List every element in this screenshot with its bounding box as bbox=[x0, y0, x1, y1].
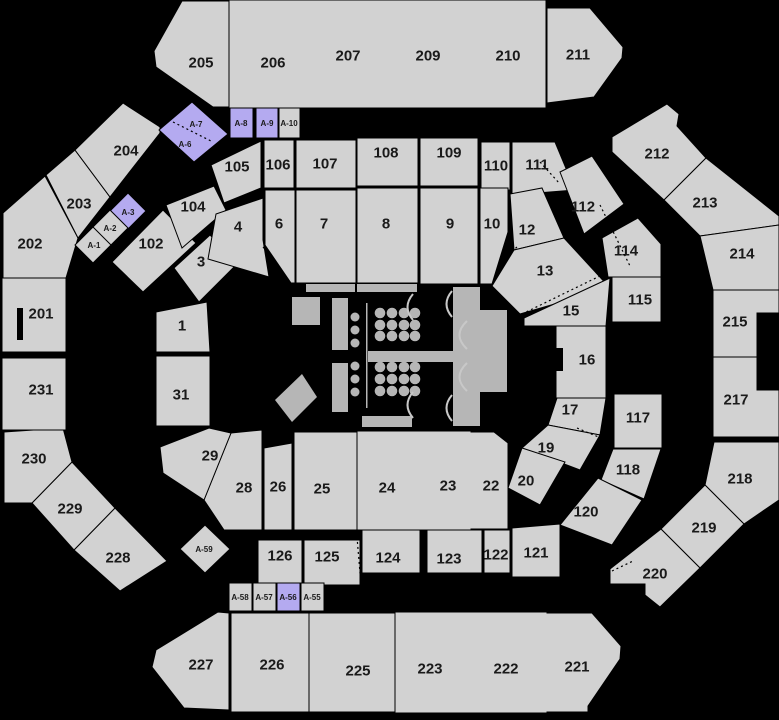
table-circle bbox=[375, 320, 386, 331]
section-shape-222[interactable] bbox=[470, 613, 546, 712]
section-shape-108[interactable] bbox=[357, 138, 418, 186]
table-circle bbox=[399, 362, 410, 373]
section-A-57[interactable]: A-57 bbox=[253, 583, 276, 611]
section-109[interactable]: 109 bbox=[420, 138, 478, 186]
section-shape-A-56[interactable] bbox=[277, 583, 300, 611]
floor-seat-circle bbox=[351, 326, 360, 335]
stage-structure-5 bbox=[366, 303, 368, 408]
section-shape-A-57[interactable] bbox=[253, 583, 276, 611]
section-shape-A-9[interactable] bbox=[256, 108, 278, 138]
section-shape-A-8[interactable] bbox=[230, 108, 253, 138]
table-circle bbox=[387, 320, 398, 331]
section-107[interactable]: 107 bbox=[296, 140, 356, 188]
section-shape-107[interactable] bbox=[296, 140, 356, 188]
table-circle bbox=[410, 331, 421, 342]
section-214[interactable]: 214 bbox=[700, 225, 779, 290]
section-shape-109[interactable] bbox=[420, 138, 478, 186]
section-201[interactable]: 201 bbox=[2, 278, 66, 352]
table-circle bbox=[387, 331, 398, 342]
aisle-cutout-1 bbox=[17, 308, 23, 340]
floor-seat-circle bbox=[351, 313, 360, 322]
table-circle bbox=[387, 386, 398, 397]
stage-structure-0 bbox=[306, 284, 355, 292]
section-shape-122[interactable] bbox=[484, 530, 510, 573]
section-9[interactable]: 9 bbox=[420, 188, 478, 284]
section-shape-9[interactable] bbox=[420, 188, 478, 284]
table-circle bbox=[410, 362, 421, 373]
table-circle bbox=[399, 320, 410, 331]
section-231[interactable]: 231 bbox=[2, 358, 66, 430]
section-shape-110[interactable] bbox=[481, 142, 510, 190]
stage-structure-9 bbox=[362, 416, 412, 427]
section-shape-26[interactable] bbox=[264, 443, 292, 530]
section-shape-22[interactable] bbox=[470, 432, 508, 529]
stage-structure-7 bbox=[453, 287, 480, 426]
stage-structure-2 bbox=[292, 297, 320, 325]
section-A-58[interactable]: A-58 bbox=[229, 583, 252, 611]
section-A-10[interactable]: A-10 bbox=[279, 108, 300, 138]
section-122[interactable]: 122 bbox=[483, 530, 510, 573]
floor-seat-circle bbox=[351, 388, 360, 397]
stage-structure-4 bbox=[332, 363, 348, 412]
stage-structure-3 bbox=[332, 298, 348, 350]
section-shape-126[interactable] bbox=[258, 540, 302, 585]
section-shape-125[interactable] bbox=[304, 540, 360, 585]
seating-map: 2052062072092102112122132142152172182192… bbox=[0, 0, 779, 720]
section-shape-A-10[interactable] bbox=[279, 108, 300, 138]
section-shape-7[interactable] bbox=[296, 190, 356, 283]
section-shape-106[interactable] bbox=[264, 140, 294, 188]
section-22[interactable]: 22 bbox=[470, 432, 508, 529]
section-226[interactable]: 226 bbox=[231, 613, 309, 712]
stage-structure-6 bbox=[368, 351, 454, 362]
section-shape-115[interactable] bbox=[612, 277, 661, 322]
section-7[interactable]: 7 bbox=[296, 190, 356, 283]
section-shape-23[interactable] bbox=[420, 432, 470, 529]
section-223[interactable]: 223 bbox=[395, 613, 470, 712]
table-circle bbox=[375, 331, 386, 342]
section-shape-123[interactable] bbox=[427, 530, 482, 573]
section-shape-210[interactable] bbox=[465, 1, 545, 107]
section-123[interactable]: 123 bbox=[427, 530, 482, 573]
section-117[interactable]: 117 bbox=[614, 394, 662, 448]
section-shape-201[interactable] bbox=[2, 278, 66, 352]
section-207[interactable]: 207 bbox=[310, 1, 390, 107]
section-31[interactable]: 31 bbox=[156, 356, 210, 426]
table-circle bbox=[410, 320, 421, 331]
stage-structure-1 bbox=[357, 284, 417, 292]
table-circle bbox=[410, 374, 421, 385]
section-shape-16[interactable] bbox=[556, 326, 606, 398]
section-124[interactable]: 124 bbox=[362, 530, 420, 573]
section-206[interactable]: 206 bbox=[230, 1, 310, 107]
section-shape-A-55[interactable] bbox=[301, 583, 324, 611]
section-25[interactable]: 25 bbox=[294, 432, 357, 530]
section-shape-209[interactable] bbox=[390, 1, 465, 107]
section-shape-231[interactable] bbox=[2, 358, 66, 430]
section-126[interactable]: 126 bbox=[258, 540, 302, 585]
section-shape-25[interactable] bbox=[294, 432, 357, 530]
section-16[interactable]: 16 bbox=[556, 326, 606, 398]
section-shape-24[interactable] bbox=[358, 432, 420, 529]
section-222[interactable]: 222 bbox=[470, 613, 546, 712]
section-106[interactable]: 106 bbox=[264, 140, 294, 188]
section-shape-214[interactable] bbox=[700, 225, 779, 290]
section-125[interactable]: 125 bbox=[304, 540, 360, 585]
section-shape-225[interactable] bbox=[309, 613, 395, 712]
section-A-9[interactable]: A-9 bbox=[256, 108, 278, 138]
section-121[interactable]: 121 bbox=[512, 524, 560, 577]
section-8[interactable]: 8 bbox=[357, 188, 418, 283]
section-23[interactable]: 23 bbox=[420, 432, 470, 529]
section-shape-206[interactable] bbox=[230, 1, 310, 107]
table-circle bbox=[387, 374, 398, 385]
table-circle bbox=[399, 386, 410, 397]
section-209[interactable]: 209 bbox=[390, 1, 465, 107]
section-A-55[interactable]: A-55 bbox=[301, 583, 324, 611]
table-circle bbox=[375, 374, 386, 385]
floor-seat-circle bbox=[351, 339, 360, 348]
section-A-8[interactable]: A-8 bbox=[230, 108, 253, 138]
section-shape-31[interactable] bbox=[156, 356, 210, 426]
floor-seat-circle bbox=[351, 375, 360, 384]
section-110[interactable]: 110 bbox=[481, 142, 510, 190]
section-shape-117[interactable] bbox=[614, 394, 662, 448]
section-shape-A-58[interactable] bbox=[229, 583, 252, 611]
table-circle bbox=[399, 374, 410, 385]
stage-structure-8 bbox=[480, 310, 507, 392]
arena-map-canvas: 2052062072092102112122132142152172182192… bbox=[0, 0, 779, 720]
section-shape-124[interactable] bbox=[362, 530, 420, 573]
table-circle bbox=[375, 308, 386, 319]
aisle-cutout-0 bbox=[507, 348, 563, 371]
section-24[interactable]: 24 bbox=[358, 432, 420, 529]
section-210[interactable]: 210 bbox=[465, 1, 545, 107]
floor-seat-circle bbox=[351, 362, 360, 371]
section-shape-223[interactable] bbox=[395, 613, 470, 712]
section-shape-121[interactable] bbox=[512, 524, 560, 577]
section-A-56[interactable]: A-56 bbox=[277, 583, 300, 611]
section-26[interactable]: 26 bbox=[264, 443, 292, 530]
section-115[interactable]: 115 bbox=[612, 277, 661, 322]
section-shape-226[interactable] bbox=[231, 613, 309, 712]
table-circle bbox=[387, 362, 398, 373]
section-225[interactable]: 225 bbox=[309, 613, 395, 712]
table-circle bbox=[387, 308, 398, 319]
section-shape-207[interactable] bbox=[310, 1, 390, 107]
table-circle bbox=[375, 386, 386, 397]
section-shape-8[interactable] bbox=[357, 188, 418, 283]
table-circle bbox=[399, 331, 410, 342]
section-108[interactable]: 108 bbox=[357, 138, 418, 186]
table-circle bbox=[375, 362, 386, 373]
